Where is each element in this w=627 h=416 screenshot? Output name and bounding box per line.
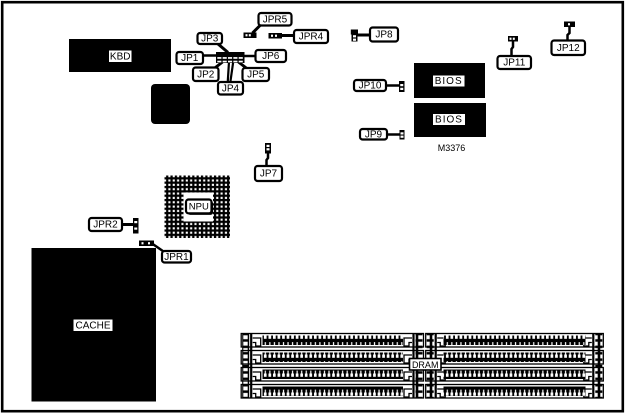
svg-text:JP9: JP9 [365, 129, 383, 140]
svg-text:JP3: JP3 [201, 34, 219, 45]
svg-text:JP8: JP8 [375, 30, 393, 41]
svg-text:JP7: JP7 [260, 169, 278, 180]
svg-text:BIOS: BIOS [435, 76, 463, 87]
svg-text:JP6: JP6 [262, 51, 280, 62]
svg-text:NPU: NPU [189, 201, 209, 212]
svg-text:DRAM: DRAM [412, 360, 439, 370]
svg-text:JP12: JP12 [557, 43, 580, 54]
svg-text:JP1: JP1 [181, 53, 199, 64]
svg-text:JPR4: JPR4 [299, 32, 324, 43]
svg-text:JP10: JP10 [359, 81, 382, 92]
svg-text:JP11: JP11 [503, 58, 525, 69]
svg-text:JP5: JP5 [247, 70, 265, 81]
svg-text:KBD: KBD [110, 51, 131, 62]
svg-text:BIOS: BIOS [435, 115, 463, 126]
svg-text:JPR1: JPR1 [164, 252, 189, 263]
svg-text:JPR5: JPR5 [263, 14, 288, 25]
svg-text:JPR2: JPR2 [93, 220, 118, 231]
svg-text:JP2: JP2 [197, 69, 215, 80]
svg-text:JP4: JP4 [222, 83, 240, 94]
svg-text:M3376: M3376 [438, 143, 466, 153]
svg-text:CACHE: CACHE [75, 320, 110, 331]
